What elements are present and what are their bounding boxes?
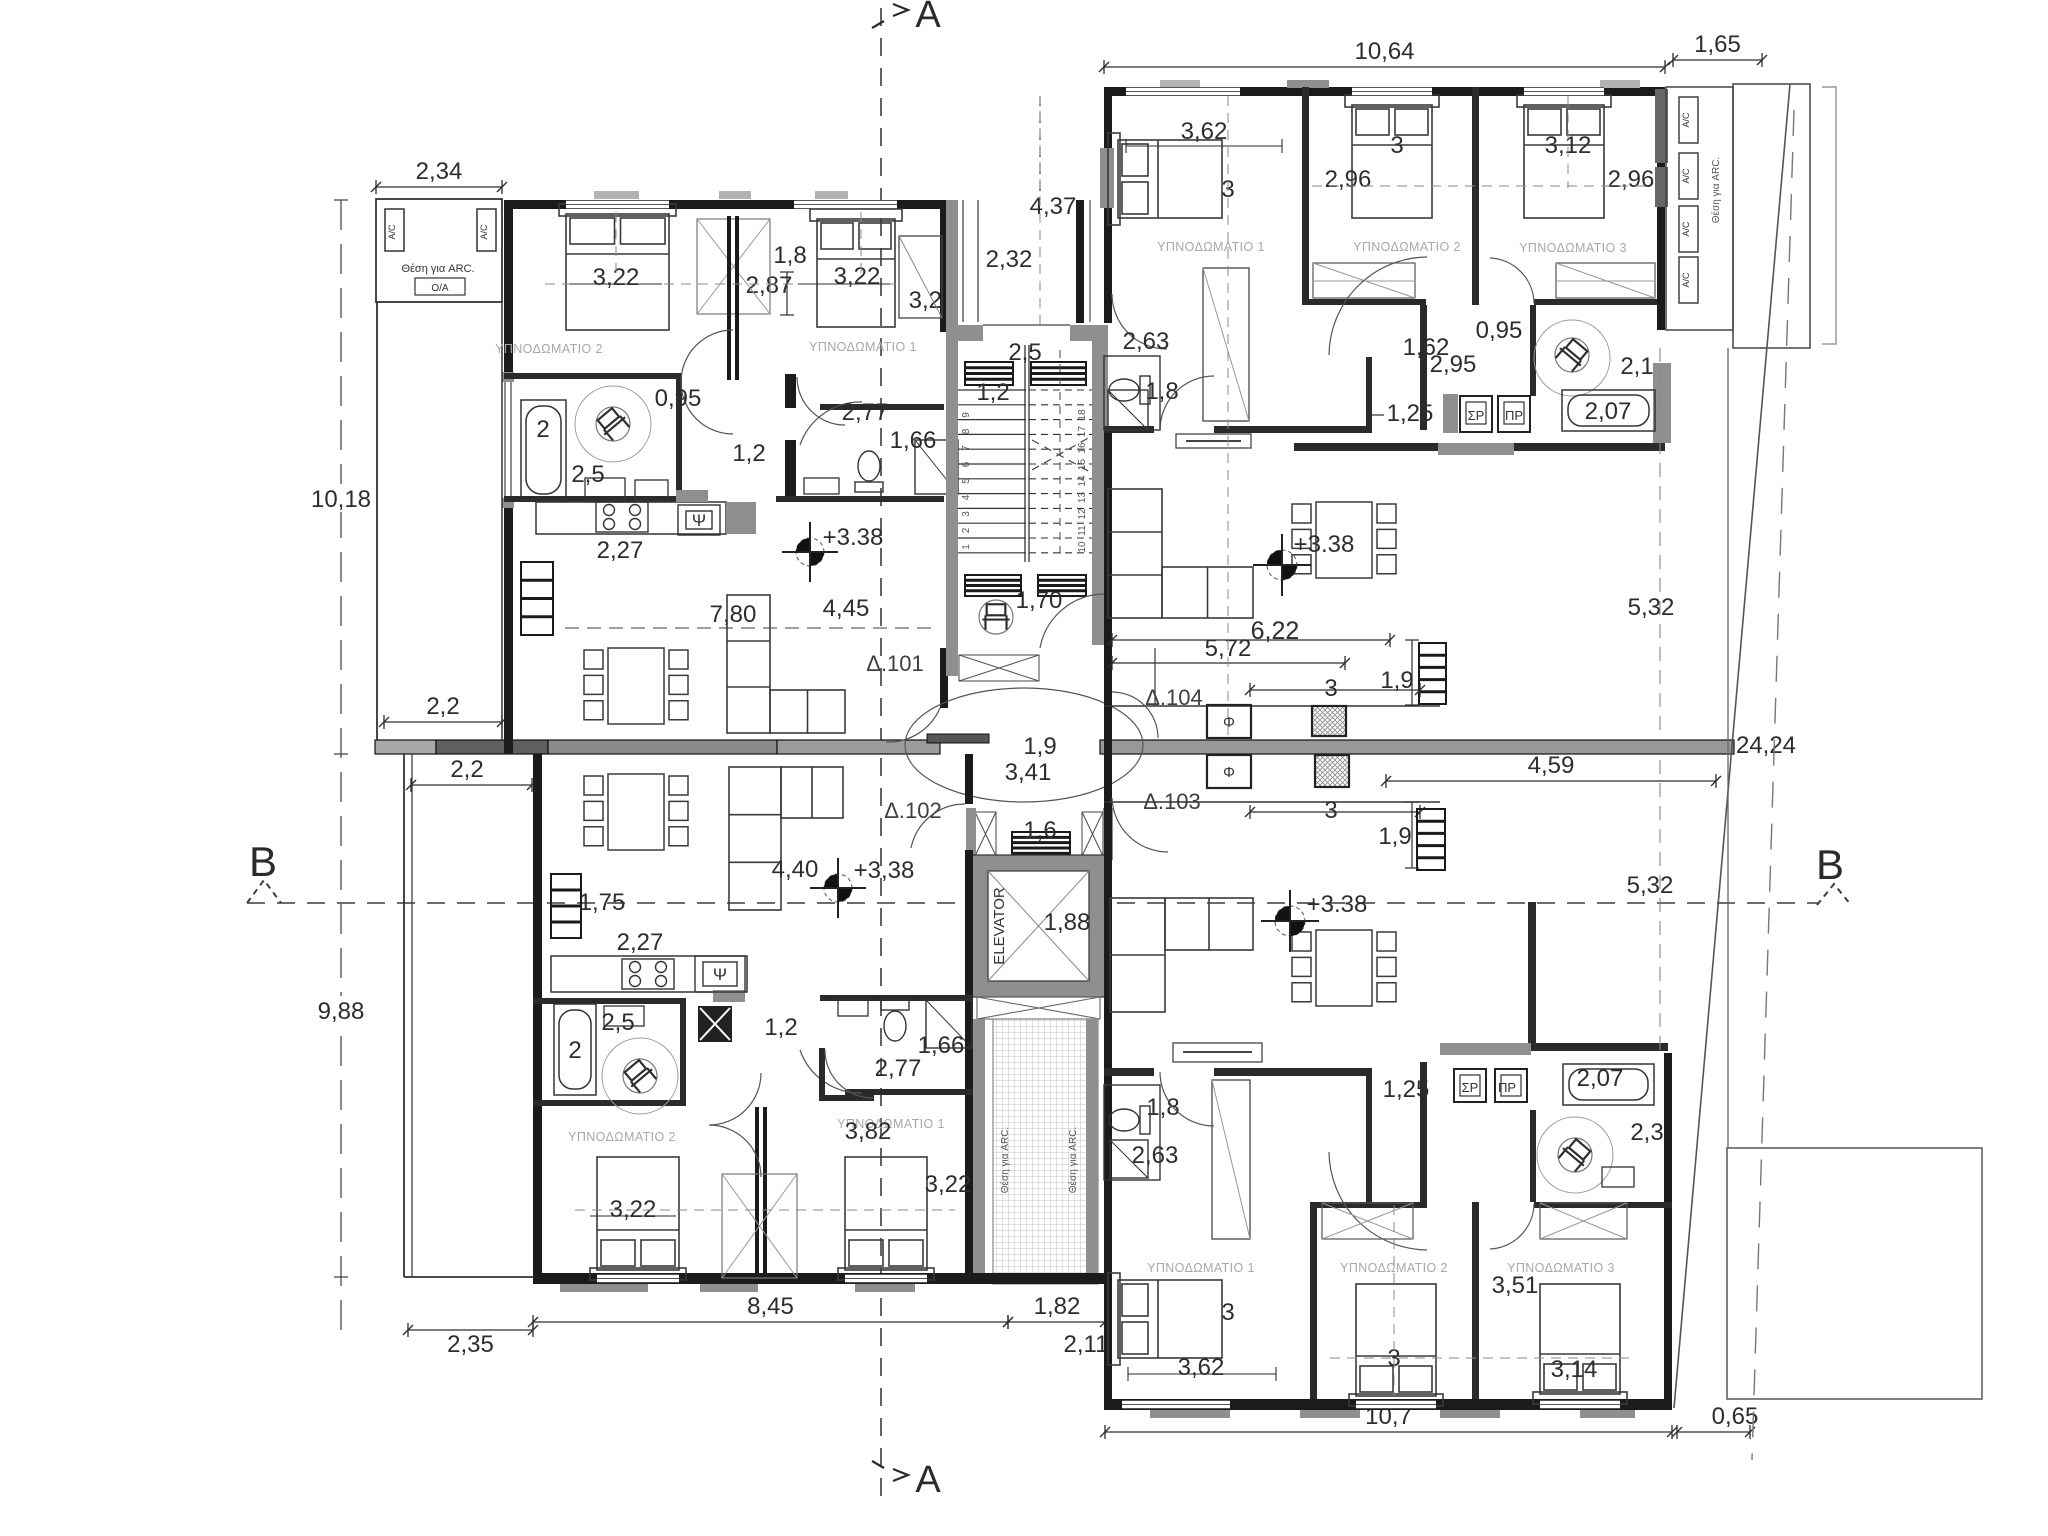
svg-text:3: 3 [1324, 797, 1337, 824]
svg-text:2,35: 2,35 [447, 1331, 494, 1358]
svg-text:A: A [915, 1459, 941, 1501]
svg-text:+3.38: +3.38 [823, 524, 884, 551]
svg-text:2,63: 2,63 [1123, 328, 1170, 355]
svg-text:ΠΡ: ΠΡ [1505, 408, 1523, 423]
svg-text:2,34: 2,34 [416, 158, 463, 185]
svg-text:13: 13 [1077, 492, 1088, 504]
svg-text:Φ: Φ [1223, 714, 1235, 731]
svg-text:1,66: 1,66 [918, 1032, 965, 1059]
svg-text:1,2: 1,2 [764, 1014, 797, 1041]
svg-text:2,1: 2,1 [1620, 353, 1653, 380]
svg-text:8,45: 8,45 [747, 1293, 794, 1320]
svg-text:+3.38: +3.38 [1294, 531, 1355, 558]
svg-text:9,88: 9,88 [318, 998, 365, 1025]
svg-text:1,9: 1,9 [1378, 823, 1411, 850]
svg-text:Ψ: Ψ [692, 511, 706, 530]
svg-text:1: 1 [961, 544, 972, 550]
svg-text:2,2: 2,2 [426, 693, 459, 720]
svg-text:Θέση για ARC.: Θέση για ARC. [1067, 1127, 1079, 1193]
svg-text:6,22: 6,22 [1251, 617, 1300, 645]
svg-text:ΥΠΝΟΔΩΜΑΤΙΟ 2: ΥΠΝΟΔΩΜΑΤΙΟ 2 [495, 342, 603, 356]
svg-text:ΥΠΝΟΔΩΜΑΤΙΟ 1: ΥΠΝΟΔΩΜΑΤΙΟ 1 [1147, 1261, 1255, 1275]
svg-text:2,63: 2,63 [1132, 1142, 1179, 1169]
svg-text:2,3: 2,3 [1630, 1119, 1663, 1146]
svg-text:A/C: A/C [479, 224, 489, 240]
svg-text:2,95: 2,95 [1430, 351, 1477, 378]
svg-text:3: 3 [1390, 132, 1403, 159]
svg-text:3,62: 3,62 [1178, 1354, 1225, 1381]
svg-text:Θέση για ARC.: Θέση για ARC. [401, 263, 474, 275]
svg-text:ELEVATOR: ELEVATOR [991, 887, 1008, 965]
svg-text:2,77: 2,77 [875, 1055, 922, 1082]
svg-text:2: 2 [536, 416, 549, 443]
svg-text:4,40: 4,40 [772, 856, 819, 883]
svg-text:2,77: 2,77 [842, 399, 889, 426]
svg-text:5,32: 5,32 [1628, 594, 1675, 621]
svg-text:4,45: 4,45 [823, 595, 870, 622]
svg-text:1,6: 1,6 [1023, 817, 1056, 844]
svg-text:Θέση για ARC.: Θέση για ARC. [999, 1127, 1011, 1193]
svg-text:A/C: A/C [1681, 112, 1691, 128]
svg-text:1,9: 1,9 [1023, 733, 1056, 760]
svg-text:B: B [1816, 841, 1844, 888]
svg-text:2,27: 2,27 [617, 929, 664, 956]
svg-text:4,59: 4,59 [1528, 752, 1575, 779]
svg-text:10: 10 [1077, 541, 1088, 553]
svg-text:7: 7 [961, 445, 972, 451]
svg-text:14: 14 [1077, 475, 1088, 487]
svg-text:3,51: 3,51 [1492, 1272, 1539, 1299]
svg-text:ΣΡ: ΣΡ [1462, 1080, 1479, 1095]
svg-text:3: 3 [1324, 675, 1337, 702]
svg-text:0,65: 0,65 [1712, 1403, 1759, 1430]
svg-text:Δ.102: Δ.102 [884, 798, 942, 823]
svg-text:1,65: 1,65 [1694, 31, 1741, 58]
svg-text:1,25: 1,25 [1387, 400, 1434, 427]
svg-text:3,41: 3,41 [1005, 759, 1052, 786]
svg-text:2,87: 2,87 [746, 272, 793, 299]
svg-text:7,80: 7,80 [710, 601, 757, 628]
svg-text:2,5: 2,5 [571, 461, 604, 488]
svg-text:2: 2 [568, 1037, 581, 1064]
svg-text:3,82: 3,82 [845, 1118, 892, 1145]
svg-text:Φ: Φ [1223, 764, 1235, 781]
svg-text:6: 6 [961, 461, 972, 467]
svg-text:10,64: 10,64 [1354, 38, 1414, 65]
svg-text:3,62: 3,62 [1181, 118, 1228, 145]
svg-text:16: 16 [1077, 442, 1088, 454]
svg-text:3,22: 3,22 [834, 263, 881, 290]
svg-text:18: 18 [1077, 409, 1088, 421]
svg-text:4: 4 [961, 494, 972, 500]
svg-text:A/C: A/C [1681, 168, 1691, 184]
svg-text:O/A: O/A [431, 283, 449, 294]
svg-text:+3,38: +3,38 [854, 857, 915, 884]
svg-text:ΥΠΝΟΔΩΜΑΤΙΟ 1: ΥΠΝΟΔΩΜΑΤΙΟ 1 [1157, 240, 1265, 254]
svg-text:Ψ: Ψ [713, 965, 727, 984]
svg-text:ΥΠΝΟΔΩΜΑΤΙΟ 3: ΥΠΝΟΔΩΜΑΤΙΟ 3 [1519, 241, 1627, 255]
svg-text:10,18: 10,18 [311, 486, 371, 513]
svg-text:ΠΡ: ΠΡ [1498, 1080, 1516, 1095]
svg-text:ΥΠΝΟΔΩΜΑΤΙΟ 2: ΥΠΝΟΔΩΜΑΤΙΟ 2 [568, 1130, 676, 1144]
svg-text:2,07: 2,07 [1577, 1065, 1624, 1092]
svg-text:+3.38: +3.38 [1307, 891, 1368, 918]
svg-text:1,2: 1,2 [976, 379, 1009, 406]
svg-text:5: 5 [961, 478, 972, 484]
svg-text:11: 11 [1077, 525, 1088, 536]
svg-text:1,70: 1,70 [1016, 587, 1063, 614]
svg-text:2,11: 2,11 [1064, 1331, 1109, 1358]
svg-text:3,14: 3,14 [1551, 1356, 1598, 1383]
svg-text:A/C: A/C [1681, 221, 1691, 237]
svg-text:ΥΠΝΟΔΩΜΑΤΙΟ 2: ΥΠΝΟΔΩΜΑΤΙΟ 2 [1353, 240, 1461, 254]
svg-text:2,27: 2,27 [597, 537, 644, 564]
svg-text:1,8: 1,8 [773, 242, 806, 269]
svg-text:1,75: 1,75 [579, 889, 626, 916]
svg-text:3: 3 [961, 511, 972, 517]
svg-text:ΣΡ: ΣΡ [1468, 408, 1485, 423]
svg-text:2,96: 2,96 [1325, 166, 1372, 193]
svg-text:A/C: A/C [387, 224, 397, 240]
svg-text:1,8: 1,8 [1146, 1094, 1179, 1121]
svg-text:Δ.104: Δ.104 [1145, 685, 1203, 710]
svg-text:0,95: 0,95 [1476, 317, 1523, 344]
svg-text:ΥΠΝΟΔΩΜΑΤΙΟ 1: ΥΠΝΟΔΩΜΑΤΙΟ 1 [809, 340, 917, 354]
svg-text:17: 17 [1077, 426, 1088, 438]
svg-text:9: 9 [961, 412, 972, 418]
svg-text:8: 8 [961, 428, 972, 434]
svg-text:Θέση για ARC.: Θέση για ARC. [1710, 157, 1722, 223]
svg-text:Δ.101: Δ.101 [866, 651, 924, 676]
svg-text:1,66: 1,66 [890, 427, 937, 454]
svg-text:5,32: 5,32 [1627, 872, 1674, 899]
svg-text:24,24: 24,24 [1736, 732, 1796, 759]
svg-text:2,07: 2,07 [1585, 398, 1632, 425]
svg-text:4,37: 4,37 [1030, 193, 1077, 220]
svg-text:2,5: 2,5 [601, 1009, 634, 1036]
svg-text:3: 3 [1221, 1299, 1234, 1326]
svg-text:A/C: A/C [1681, 272, 1691, 288]
svg-text:0,95: 0,95 [655, 385, 702, 412]
svg-text:A: A [915, 0, 941, 36]
svg-text:B: B [249, 838, 277, 885]
svg-text:2,2: 2,2 [450, 756, 483, 783]
svg-text:12: 12 [1077, 508, 1088, 520]
svg-text:1,8: 1,8 [1145, 378, 1178, 405]
svg-text:2,96: 2,96 [1608, 166, 1655, 193]
svg-text:2,32: 2,32 [986, 246, 1033, 273]
svg-text:3,22: 3,22 [925, 1171, 972, 1198]
svg-text:1,88: 1,88 [1044, 909, 1091, 936]
svg-text:1,2: 1,2 [732, 440, 765, 467]
svg-text:2: 2 [961, 527, 972, 533]
svg-text:1,82: 1,82 [1034, 1293, 1081, 1320]
